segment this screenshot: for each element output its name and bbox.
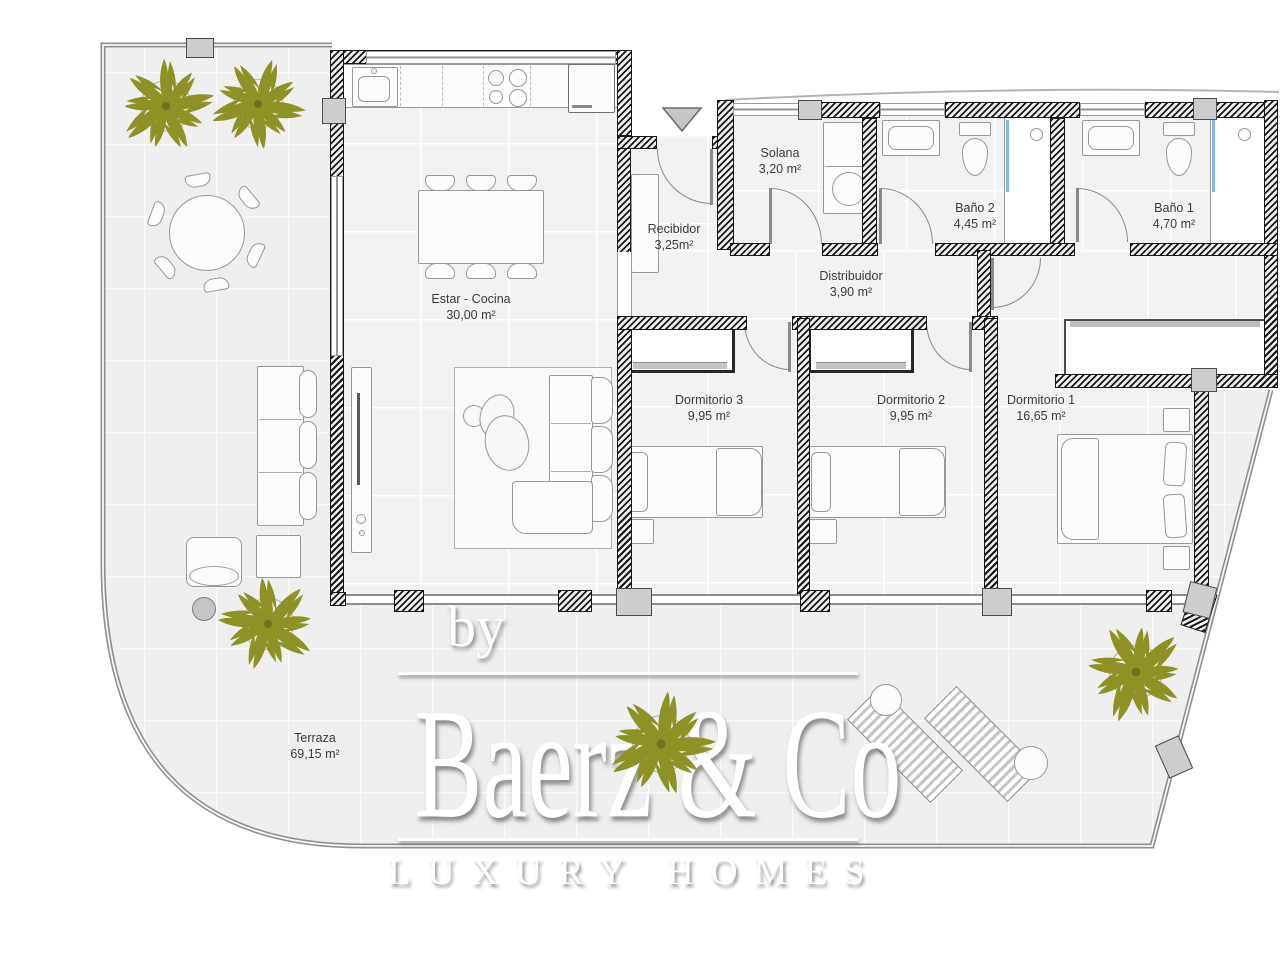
watermark-tagline: LUXURY HOMES: [388, 851, 878, 894]
counter-divider: [483, 66, 484, 106]
wall: [977, 250, 991, 318]
bed-pillow: [1162, 493, 1187, 538]
room-name: Baño 1: [1154, 201, 1194, 215]
tv-unit-knob: [356, 514, 366, 524]
door-leaf: [710, 149, 713, 205]
door-leaf: [769, 188, 772, 244]
wall: [797, 318, 810, 594]
tv-screen: [357, 393, 360, 485]
outdoor-sofa-seam: [259, 419, 302, 420]
kitchen-sink-basin: [358, 76, 390, 102]
dining-table: [418, 190, 544, 264]
washbasin-bowl: [1088, 126, 1134, 150]
side-table: [256, 535, 301, 578]
wall: [617, 135, 631, 254]
shower-accent-bano1: [1212, 120, 1215, 192]
watermark-brand: Baerz & Co: [414, 682, 866, 847]
wall-post: [186, 38, 214, 58]
tv-unit-knob: [359, 530, 365, 536]
sliding-door: [1010, 594, 1150, 605]
room-label-recibidor: Recibidor 3,25m²: [648, 221, 701, 254]
room-area: 3,90 m²: [830, 285, 872, 299]
room-name: Terraza: [294, 731, 336, 745]
room-name: Dormitorio 3: [675, 393, 743, 407]
window: [331, 176, 343, 356]
dining-chair: [466, 175, 496, 191]
wall: [717, 100, 734, 250]
room-label-bano-2: Baño 2 4,45 m²: [954, 200, 996, 233]
room-area: 9,95 m²: [688, 409, 730, 423]
dining-chair: [466, 263, 496, 279]
hob-burner: [509, 89, 527, 107]
room-label-bano-1: Baño 1 4,70 m²: [1153, 200, 1195, 233]
wall: [558, 590, 592, 612]
sofa-back-cushion: [591, 426, 613, 473]
room-area: 3,20 m²: [759, 162, 801, 176]
wall: [862, 118, 877, 250]
lounger-side-table: [1014, 746, 1048, 780]
room-area: 4,70 m²: [1153, 217, 1195, 231]
door-leaf: [1076, 188, 1079, 242]
floor-distribuidor: [619, 250, 1278, 318]
wall: [617, 136, 657, 149]
wall: [394, 590, 424, 612]
dining-chair: [507, 263, 537, 279]
wall-post: [1193, 98, 1217, 120]
sofa-chaise: [512, 481, 593, 534]
counter-divider: [530, 66, 531, 106]
room-area: 69,15 m²: [290, 747, 339, 761]
bed-duvet: [1061, 438, 1099, 540]
outdoor-sofa-seam: [259, 472, 302, 473]
washing-machine-drum: [832, 172, 866, 206]
wall: [617, 50, 632, 142]
room-area: 9,95 m²: [890, 409, 932, 423]
wall: [822, 243, 878, 256]
sofa-back-cushion: [591, 377, 613, 424]
wall: [617, 314, 632, 606]
room-area: 4,45 m²: [954, 217, 996, 231]
wall-post: [1191, 368, 1217, 392]
toilet-tank: [1163, 122, 1195, 136]
room-label-dormitorio-2: Dormitorio 2 9,95 m²: [877, 392, 945, 425]
wall: [1194, 386, 1209, 598]
wall: [984, 318, 998, 594]
wardrobe-rail: [816, 362, 906, 369]
toilet-tank: [959, 122, 991, 136]
room-name: Estar - Cocina: [431, 292, 510, 306]
outdoor-sofa-cushion: [299, 472, 317, 520]
window: [880, 103, 945, 116]
room-label-solana: Solana 3,20 m²: [759, 145, 801, 178]
bed-duvet: [716, 448, 762, 516]
wall: [792, 316, 927, 330]
door-leaf: [991, 258, 994, 310]
dining-chair: [425, 263, 455, 279]
wall: [1130, 243, 1278, 256]
wall: [800, 590, 830, 612]
sofa-seam: [551, 423, 591, 424]
wardrobe-dormitorio-1: [1064, 319, 1266, 376]
outdoor-sofa-cushion: [299, 370, 317, 418]
hob-burner: [489, 90, 503, 104]
sofa-seam: [551, 471, 591, 472]
room-name: Recibidor: [648, 222, 701, 236]
door-leaf: [879, 188, 882, 244]
wardrobe-rail: [633, 362, 727, 369]
room-area: 16,65 m²: [1016, 409, 1065, 423]
wall: [945, 102, 1080, 118]
entrance-arrow-icon: [663, 108, 701, 131]
counter-divider: [400, 66, 401, 106]
room-name: Baño 2: [955, 201, 995, 215]
outdoor-sofa: [257, 366, 304, 526]
planter-pot: [192, 597, 216, 621]
nightstand: [1163, 408, 1190, 432]
fridge-handle: [572, 105, 592, 108]
nightstand: [807, 519, 837, 544]
dining-chair: [507, 175, 537, 191]
wall: [730, 243, 770, 256]
room-name: Dormitorio 1: [1007, 393, 1075, 407]
room-label-terraza: Terraza 69,15 m²: [290, 730, 339, 763]
bed-pillow: [1162, 441, 1187, 486]
window: [1080, 103, 1145, 116]
wall-post: [798, 100, 822, 120]
nightstand: [1163, 546, 1190, 570]
shower-bano1: [1210, 118, 1264, 245]
outdoor-sofa-cushion: [299, 421, 317, 469]
wall-post: [616, 588, 652, 616]
room-label-distribuidor: Distribuidor 3,90 m²: [819, 268, 882, 301]
tv-unit: [351, 367, 372, 553]
floor-plan: Estar - Cocina 30,00 m² Recibidor 3,25m²…: [0, 0, 1280, 960]
hob-burner: [509, 69, 527, 87]
room-area: 30,00 m²: [446, 308, 495, 322]
dining-chair: [425, 175, 455, 191]
wall: [1050, 118, 1065, 250]
sofa-back-cushion: [591, 475, 613, 522]
cased-opening: [617, 252, 632, 316]
room-label-dormitorio-1: Dormitorio 1 16,65 m²: [1007, 392, 1075, 425]
shower-head-icon: [1238, 128, 1251, 141]
window: [733, 103, 800, 116]
watermark-rule-top: [398, 672, 858, 675]
watermark-by: by: [447, 593, 505, 660]
room-label-estar-cocina: Estar - Cocina 30,00 m²: [431, 291, 510, 324]
bed-pillow: [811, 452, 831, 512]
watermark-rule-bottom: [398, 838, 858, 841]
wall: [935, 243, 1075, 256]
bed-duvet: [899, 448, 945, 516]
sliding-door: [830, 594, 984, 605]
room-name: Dormitorio 2: [877, 393, 945, 407]
door-leaf: [788, 322, 791, 372]
wall-post: [322, 98, 346, 124]
wall: [1055, 374, 1278, 388]
room-label-dormitorio-3: Dormitorio 3 9,95 m²: [675, 392, 743, 425]
pouf-cushion: [189, 566, 239, 586]
sliding-door: [650, 594, 802, 605]
shower-accent-bano2: [1006, 120, 1009, 192]
washbasin-bowl: [888, 126, 934, 150]
room-area: 3,25m²: [655, 238, 694, 252]
shower-head-icon: [1030, 128, 1043, 141]
wall: [617, 316, 747, 330]
terrace-round-table: [169, 195, 245, 271]
counter-divider: [442, 66, 443, 106]
wall: [330, 592, 346, 606]
wall-post: [982, 588, 1012, 616]
hob-burner: [488, 70, 504, 86]
wall: [1146, 590, 1172, 612]
shower-bano2: [1004, 118, 1050, 245]
kitchen-tap: [371, 68, 377, 74]
window: [366, 51, 616, 64]
room-name: Solana: [761, 146, 800, 160]
wardrobe-rail: [1070, 321, 1260, 327]
room-name: Distribuidor: [819, 269, 882, 283]
